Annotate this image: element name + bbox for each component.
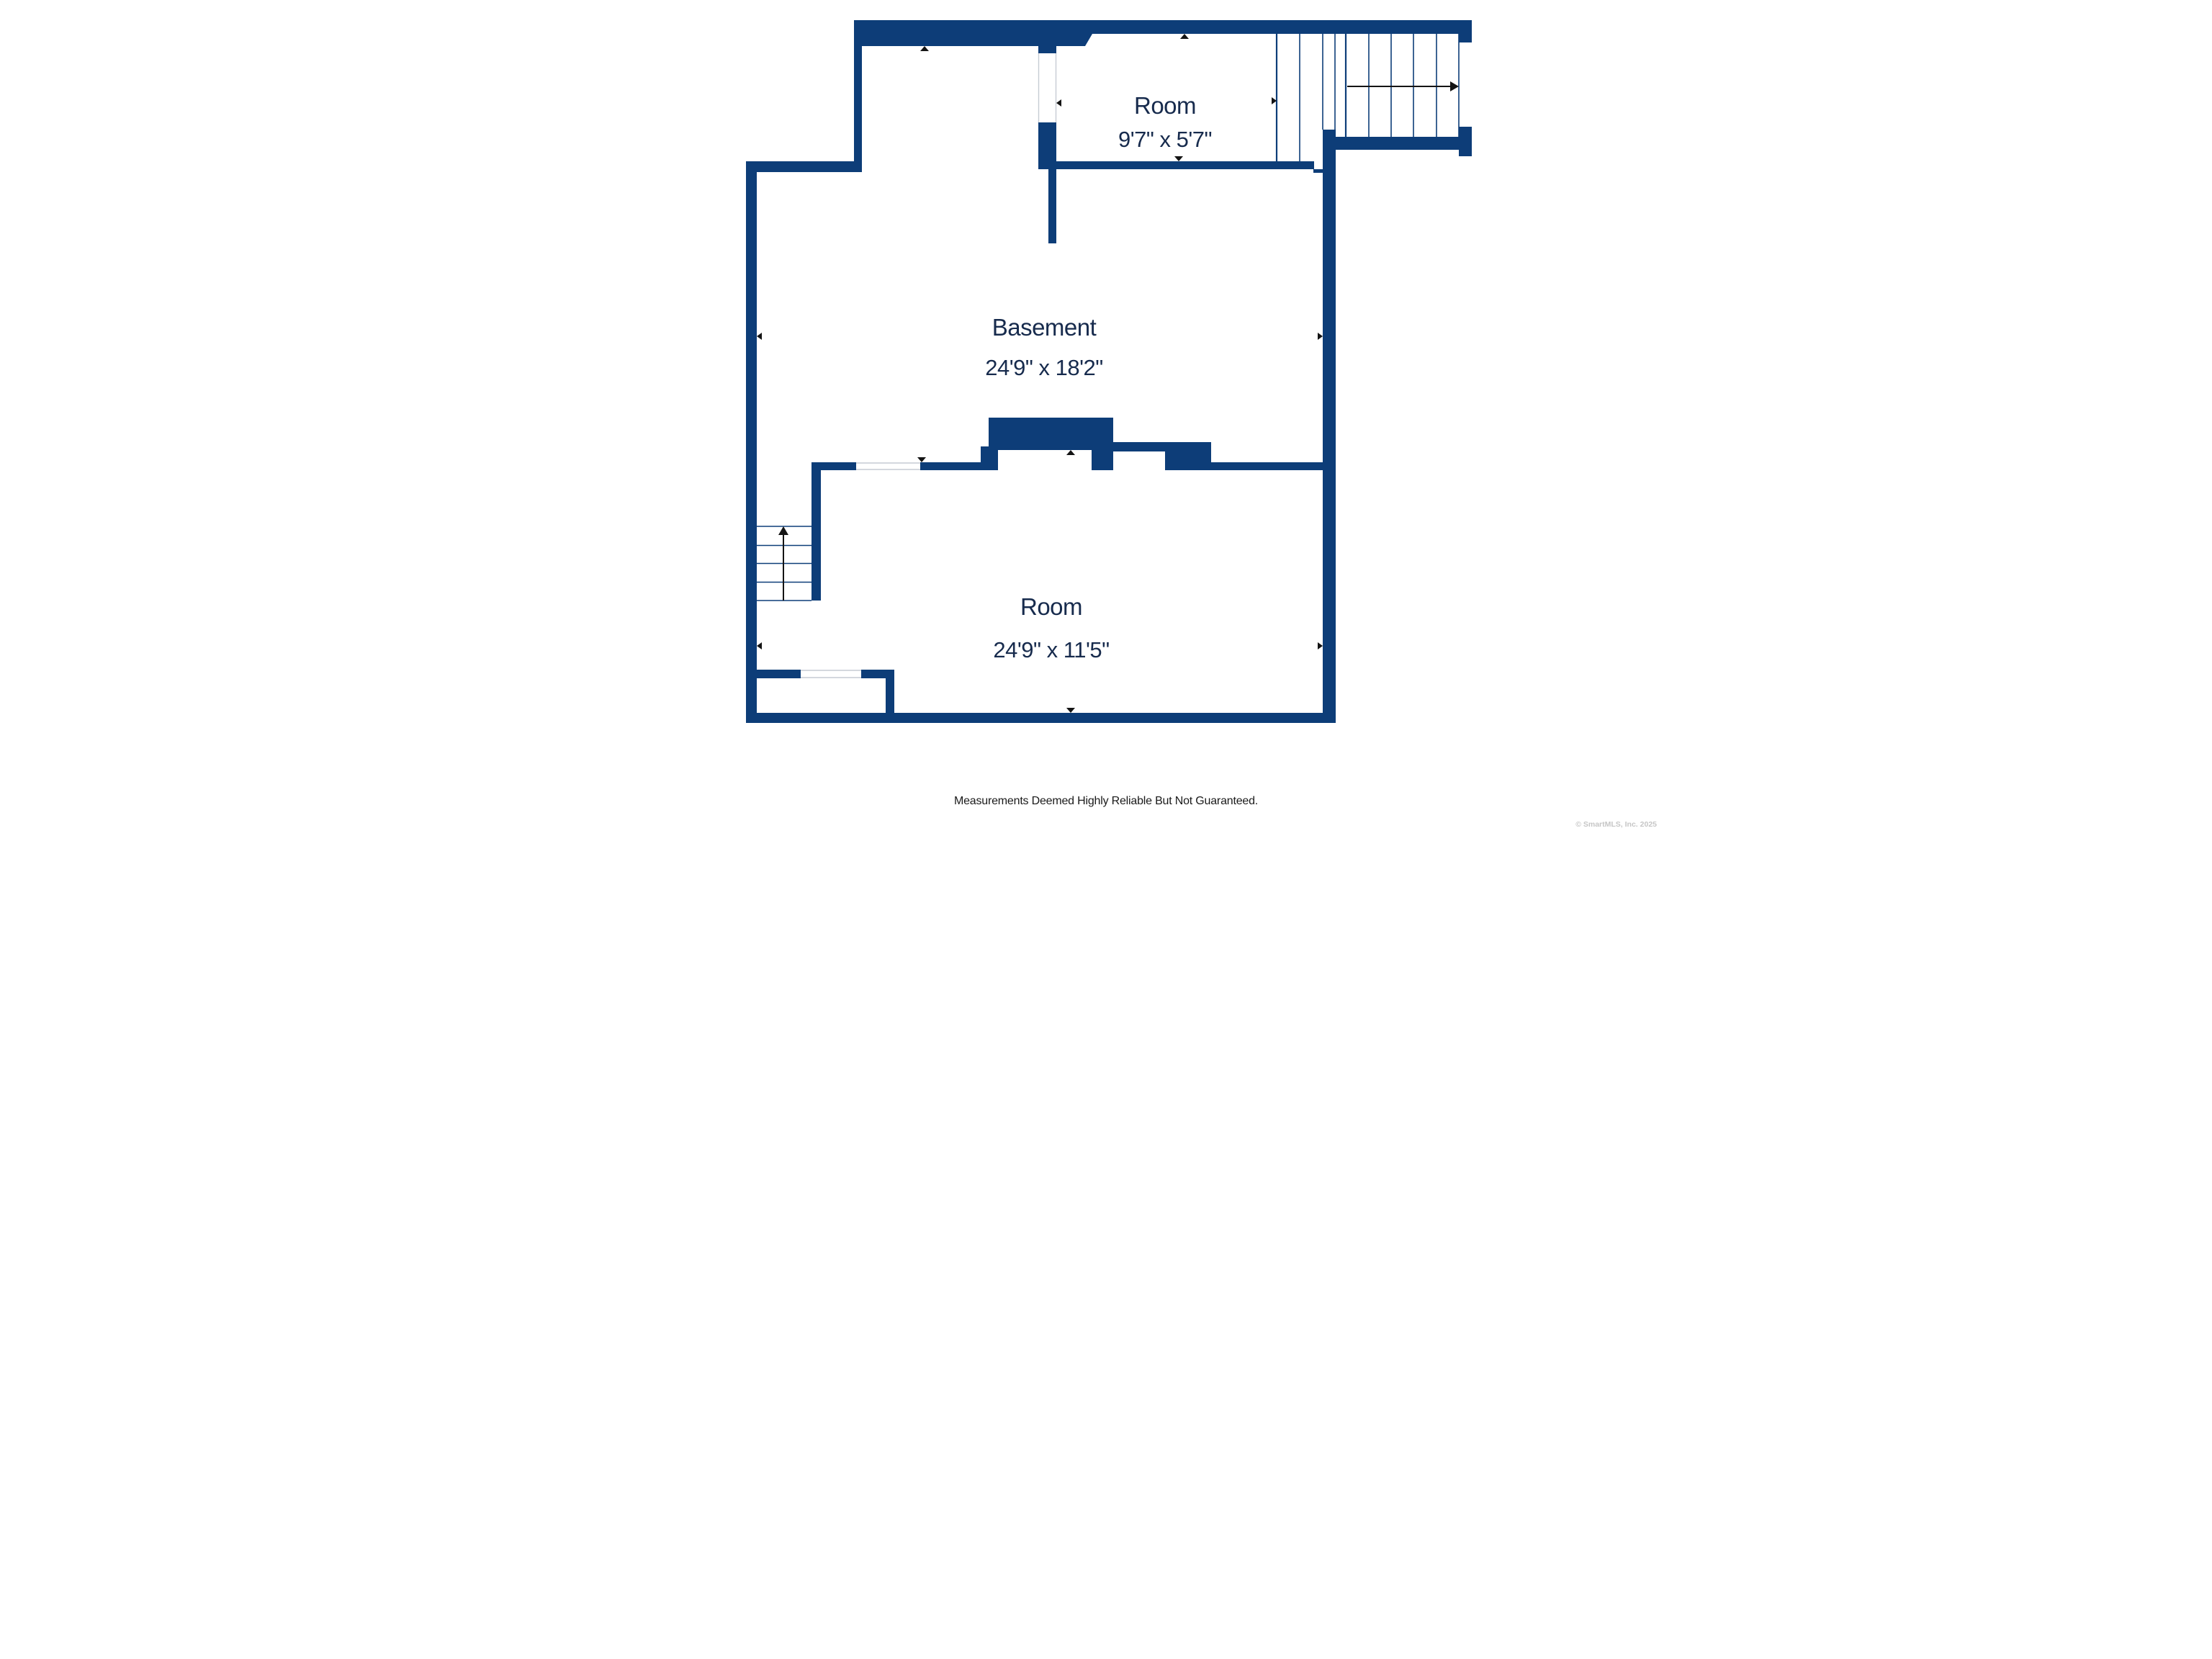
wall-dividing-c	[1210, 462, 1323, 470]
measure-up-icon-room-bottom	[1066, 450, 1075, 455]
window-closet	[801, 670, 861, 678]
measure-down-icon-room-bottom	[1066, 708, 1075, 713]
measure-right-icon-room-bottom	[1318, 642, 1323, 649]
disclaimer-text: Measurements Deemed Highly Reliable But …	[954, 795, 1258, 807]
staircase-lower-left	[757, 526, 811, 601]
basement-dimensions: 24'9" x 18'2"	[985, 355, 1103, 380]
measure-down-icon-window	[917, 457, 926, 462]
floor-plan-page: Room 9'7" x 5'7" Basement 24'9" x 18'2" …	[553, 0, 1659, 829]
wall-closet-right	[886, 678, 894, 713]
wall-dividing-upper-band	[1112, 442, 1173, 451]
wall-basement-stub	[1048, 168, 1056, 243]
wall-left-main	[746, 161, 757, 723]
measure-right-icon-basement	[1318, 333, 1323, 340]
wall-lower-stair-side	[811, 462, 821, 601]
walls	[746, 20, 1472, 723]
measure-left-icon-room-top	[1056, 99, 1061, 107]
wall-top-exterior	[854, 20, 1472, 46]
wall-chimney-step	[981, 446, 989, 463]
wall-bottom-exterior	[746, 713, 1336, 723]
wall-left-upper	[854, 20, 862, 172]
wall-vestibule-block	[1038, 122, 1056, 169]
floor-plan-canvas: Room 9'7" x 5'7" Basement 24'9" x 18'2" …	[553, 0, 1659, 829]
measure-left-icon-room-bottom	[757, 642, 762, 649]
wall-chimney-right-leg	[1092, 450, 1113, 470]
wall-dividing-b	[920, 462, 989, 470]
wall-stairwell-bottom	[1335, 137, 1472, 150]
wall-chimney-body	[989, 418, 1113, 450]
wall-dividing-a	[811, 462, 856, 470]
window-dividing-wall	[856, 463, 920, 469]
room-bottom-label: Room	[1020, 593, 1082, 620]
room-bottom-dimensions: 24'9" x 11'5"	[993, 637, 1109, 662]
basement-label: Basement	[992, 314, 1097, 341]
wall-closet-top-left	[757, 670, 801, 678]
watermark-text: © SmartMLS, Inc. 2025	[1575, 820, 1657, 829]
measure-up-icon-room-top	[1180, 34, 1189, 39]
wall-room-top-bottom-step	[1313, 169, 1323, 173]
wall-room-top-bottom	[1048, 161, 1314, 169]
wall-right-exterior	[1323, 130, 1336, 723]
room-top-label: Room	[1134, 92, 1196, 119]
measure-up-icon-basement	[920, 46, 929, 51]
wall-dividing-jog-block	[1165, 442, 1211, 470]
wall-vestibule-stub	[1038, 46, 1056, 53]
wall-closet-top-right	[861, 670, 894, 678]
room-top-dimensions: 9'7" x 5'7"	[1118, 127, 1212, 152]
wall-chimney-left-leg	[989, 450, 998, 470]
stair-direction-right-icon	[1347, 81, 1459, 91]
wall-step-out	[746, 161, 862, 172]
room-labels: Room 9'7" x 5'7" Basement 24'9" x 18'2" …	[985, 92, 1212, 662]
measure-left-icon-basement	[757, 333, 762, 340]
wall-top-right-corner-block	[1459, 34, 1472, 42]
door-vestibule	[1039, 53, 1056, 122]
measure-down-icon-room-top	[1174, 156, 1183, 161]
wall-stairwell-corner-block	[1459, 127, 1472, 156]
